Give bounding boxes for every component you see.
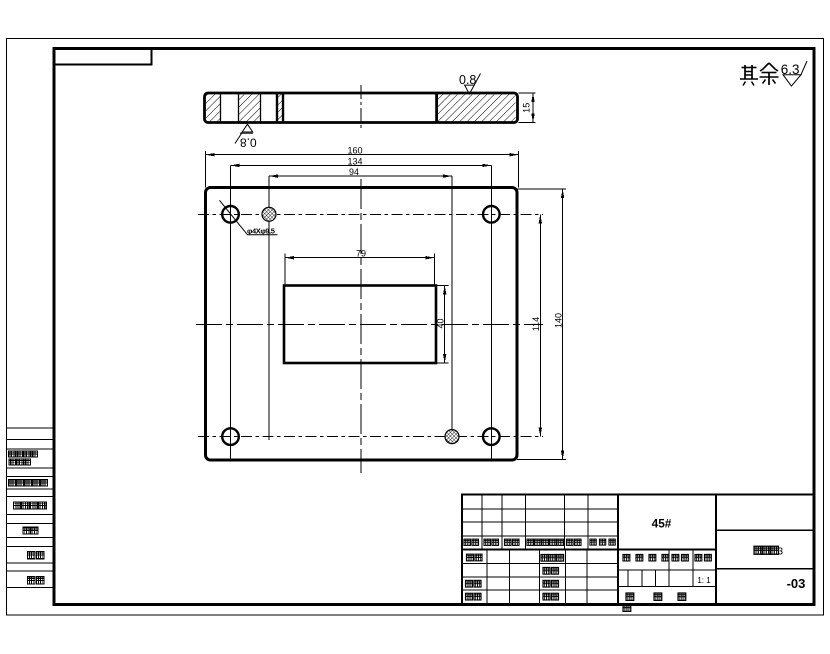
svg-text:160: 160 — [347, 146, 362, 156]
svg-text:134: 134 — [347, 156, 362, 166]
svg-text:15: 15 — [522, 103, 532, 113]
svg-text:79: 79 — [356, 249, 366, 259]
svg-text:-03: -03 — [787, 576, 806, 591]
svg-text:94: 94 — [349, 167, 359, 177]
svg-text:1: 1: 1: 1 — [697, 576, 711, 585]
svg-text:3: 3 — [778, 547, 784, 558]
svg-text:45#: 45# — [652, 517, 672, 531]
svg-text:40: 40 — [436, 318, 446, 328]
svg-text:0.8: 0.8 — [240, 135, 257, 149]
svg-text:140: 140 — [554, 313, 564, 328]
svg-text:114: 114 — [531, 317, 541, 331]
svg-text:φ4Xφ9.5: φ4Xφ9.5 — [247, 227, 275, 236]
